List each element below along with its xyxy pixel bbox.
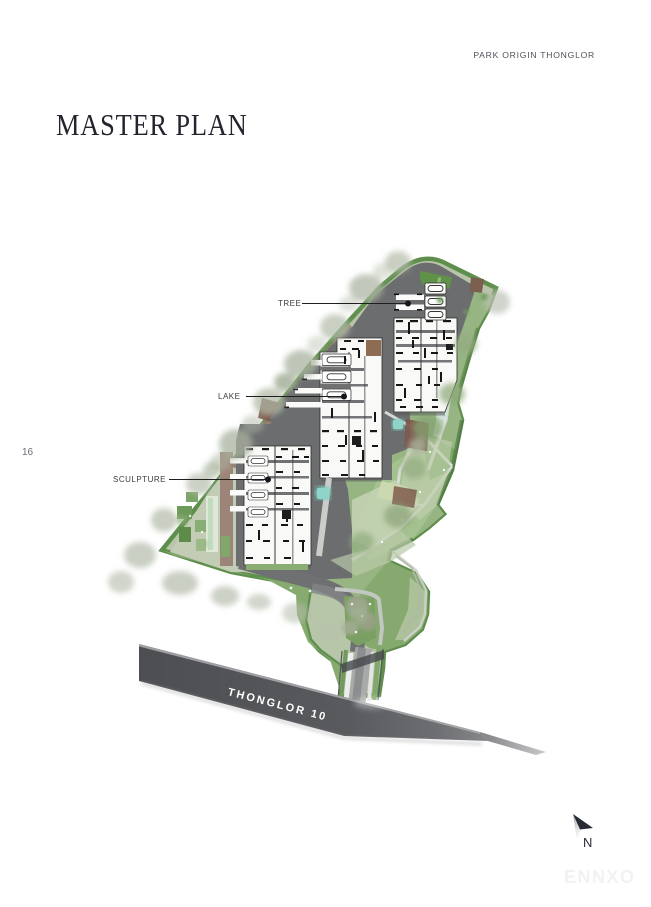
svg-text:N: N [583,835,592,850]
